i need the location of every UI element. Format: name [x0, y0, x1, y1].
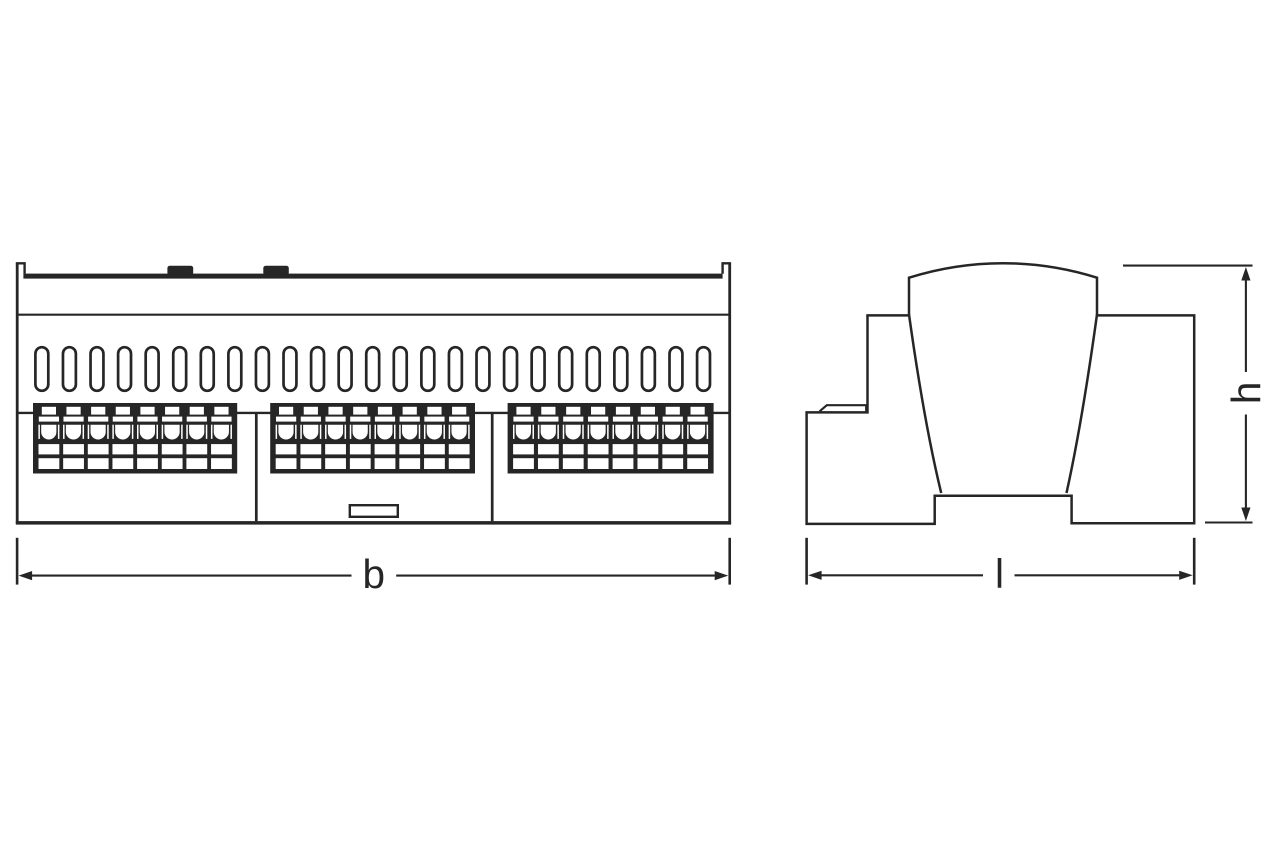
- svg-text:h: h: [1223, 382, 1269, 405]
- svg-text:l: l: [995, 551, 1004, 597]
- svg-text:b: b: [363, 551, 386, 597]
